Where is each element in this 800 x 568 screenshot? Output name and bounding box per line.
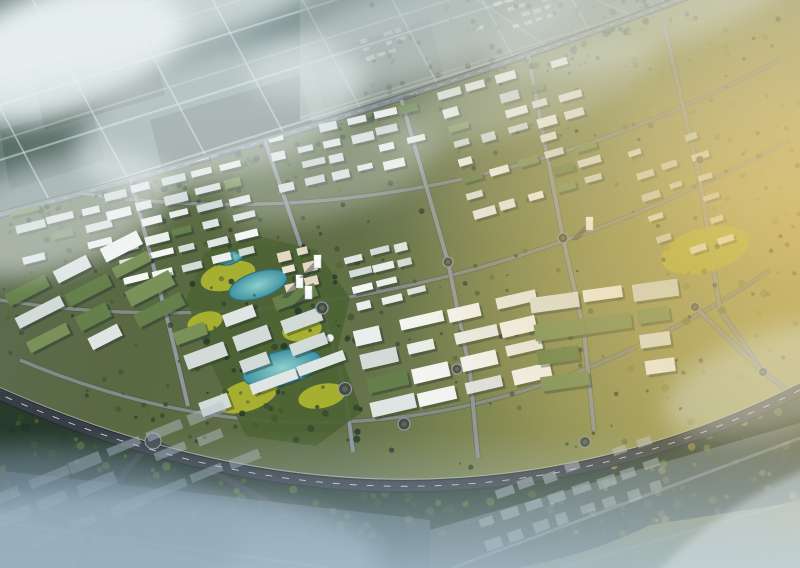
roundabout-1 [316, 302, 328, 314]
aerial-city-render [0, 0, 800, 568]
scene-canvas [0, 0, 800, 568]
roundabout-2 [339, 383, 352, 396]
